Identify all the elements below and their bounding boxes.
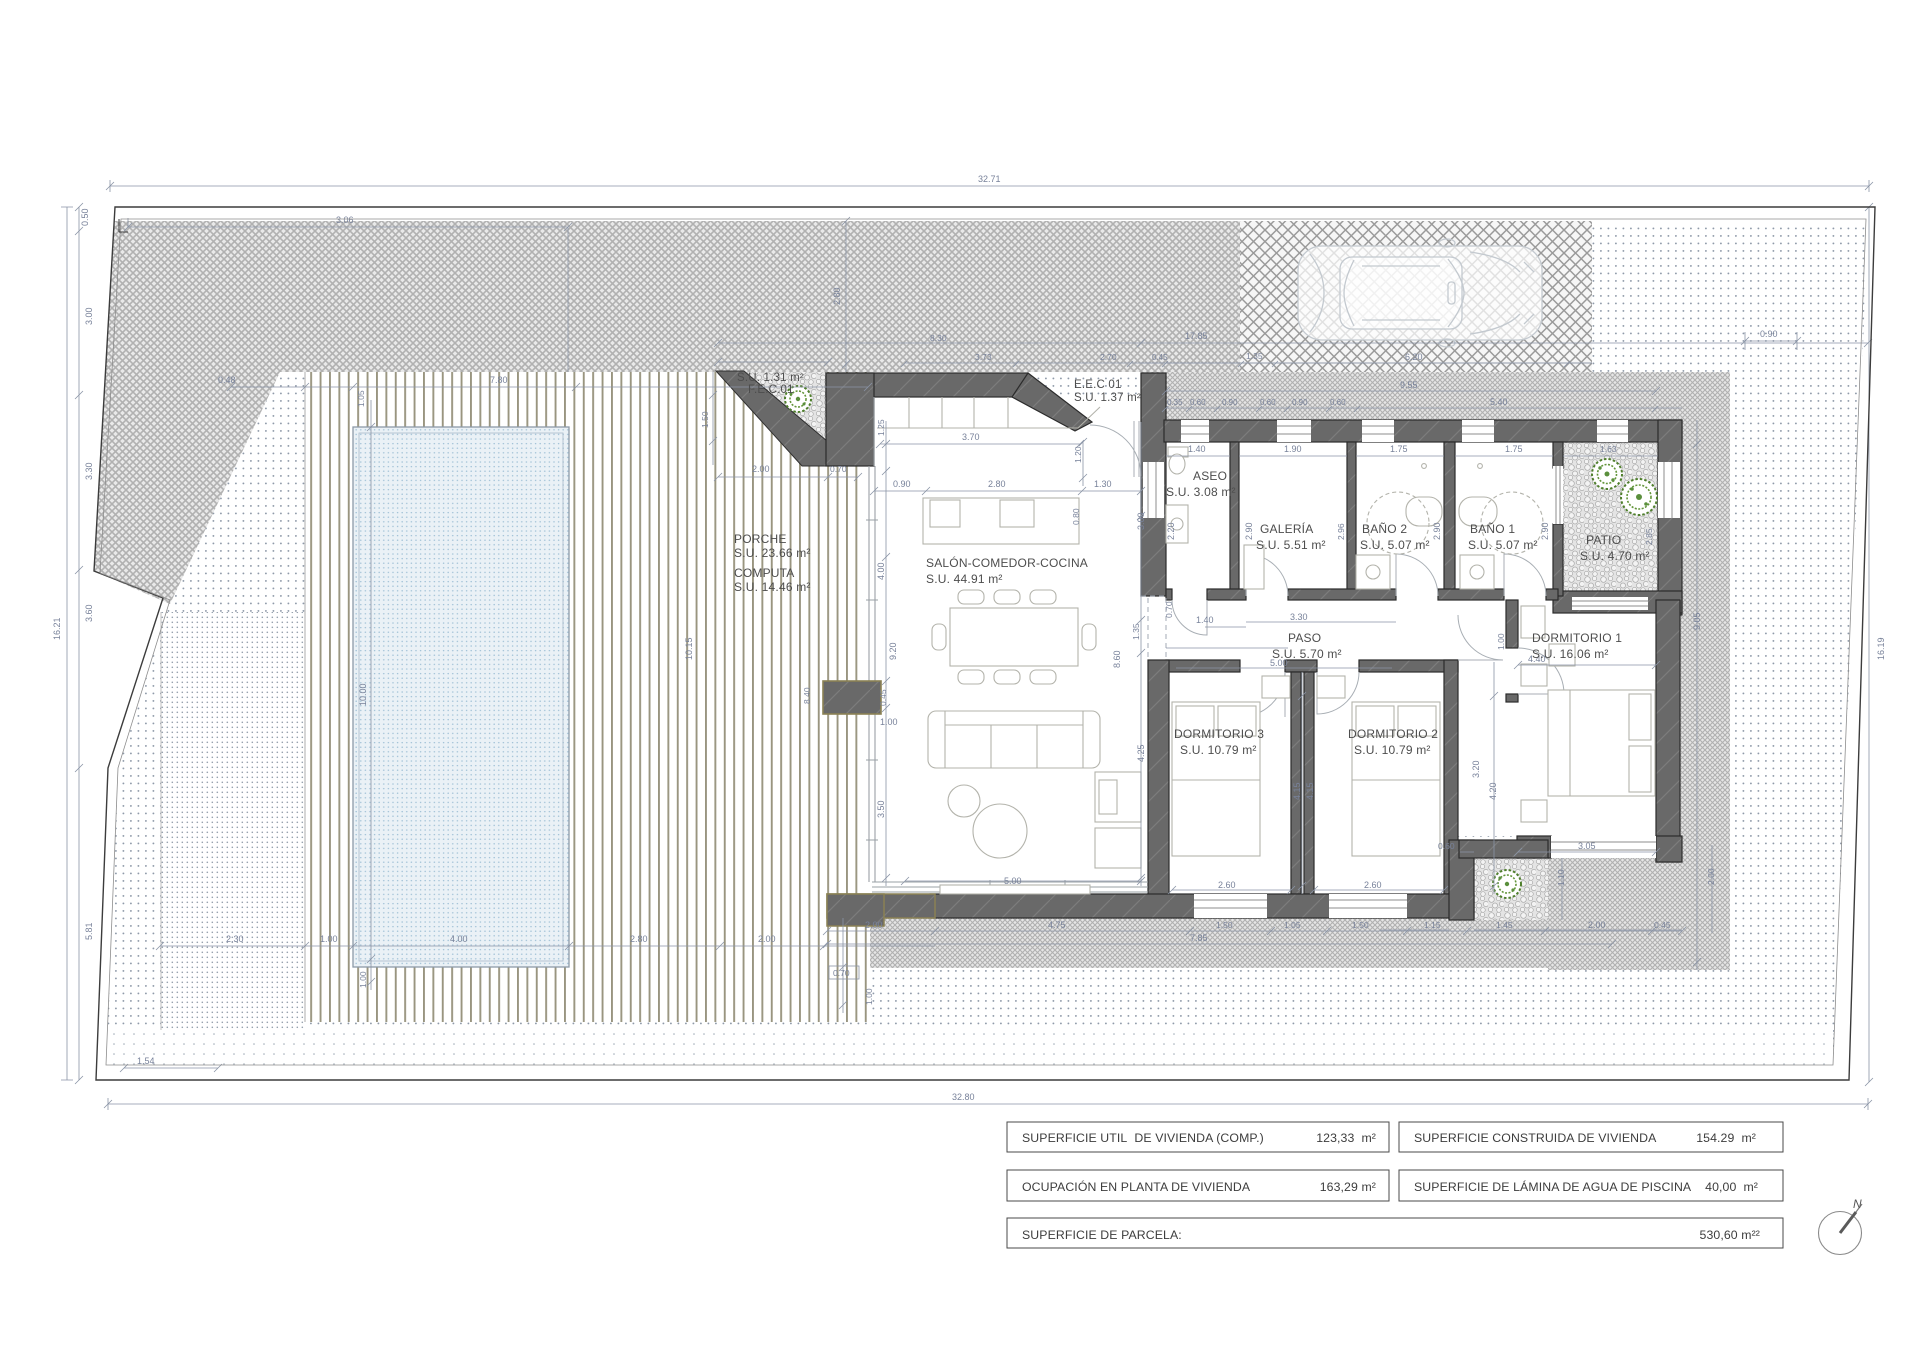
svg-text:2.00: 2.00 bbox=[1588, 920, 1606, 930]
svg-text:154.29 m²: 154.29 m² bbox=[1696, 1131, 1756, 1145]
svg-text:0.90: 0.90 bbox=[1292, 398, 1308, 407]
svg-text:2.90: 2.90 bbox=[1244, 522, 1254, 540]
svg-text:3.00: 3.00 bbox=[1136, 512, 1146, 530]
svg-text:3.70: 3.70 bbox=[962, 432, 980, 442]
svg-text:4.20: 4.20 bbox=[1488, 782, 1498, 800]
svg-text:1.50: 1.50 bbox=[700, 411, 710, 428]
svg-text:4.15: 4.15 bbox=[1292, 782, 1302, 800]
svg-text:S.U. 1.31 m²: S.U. 1.31 m² bbox=[737, 372, 804, 384]
svg-text:2.80: 2.80 bbox=[988, 479, 1006, 489]
svg-text:5.00: 5.00 bbox=[1004, 876, 1022, 886]
svg-text:2.85: 2.85 bbox=[1644, 528, 1654, 545]
svg-text:1.75: 1.75 bbox=[1390, 444, 1408, 454]
svg-text:SALÓN-COMEDOR-COCINA: SALÓN-COMEDOR-COCINA bbox=[926, 555, 1088, 570]
svg-text:3.60: 3.60 bbox=[84, 604, 94, 622]
svg-text:SUPERFICIE DE PARCELA:: SUPERFICIE DE PARCELA: bbox=[1022, 1228, 1182, 1242]
svg-text:1.00: 1.00 bbox=[1496, 633, 1506, 650]
svg-text:3.50: 3.50 bbox=[876, 800, 886, 818]
svg-text:163,29 m²: 163,29 m² bbox=[1320, 1180, 1376, 1194]
svg-text:0.90: 0.90 bbox=[1222, 398, 1238, 407]
svg-text:8.60: 8.60 bbox=[1112, 650, 1122, 668]
svg-text:2.80: 2.80 bbox=[630, 934, 648, 944]
svg-text:0.60: 0.60 bbox=[1190, 398, 1206, 407]
svg-text:2.60: 2.60 bbox=[1364, 880, 1382, 890]
svg-text:10.15: 10.15 bbox=[684, 637, 694, 660]
svg-text:1.05: 1.05 bbox=[356, 390, 366, 407]
svg-text:2.00: 2.00 bbox=[865, 920, 883, 930]
svg-text:PATIO: PATIO bbox=[1586, 533, 1621, 547]
svg-text:0.90: 0.90 bbox=[893, 479, 911, 489]
svg-text:1.75: 1.75 bbox=[1505, 444, 1523, 454]
svg-text:1.54: 1.54 bbox=[137, 1056, 155, 1066]
svg-text:1.20: 1.20 bbox=[1073, 446, 1083, 463]
svg-text:S.U. 5.07 m²: S.U. 5.07 m² bbox=[1468, 538, 1538, 552]
svg-text:2.30: 2.30 bbox=[226, 934, 244, 944]
svg-text:F.E.C.01: F.E.C.01 bbox=[748, 384, 794, 396]
svg-text:2.70: 2.70 bbox=[1100, 352, 1117, 362]
svg-text:2.20: 2.20 bbox=[1166, 522, 1176, 540]
svg-text:1.00: 1.00 bbox=[358, 971, 368, 988]
svg-text:2.00: 2.00 bbox=[1706, 868, 1716, 885]
svg-text:4.00: 4.00 bbox=[450, 934, 468, 944]
svg-text:10.00: 10.00 bbox=[358, 683, 368, 706]
svg-text:3.05: 3.05 bbox=[1578, 841, 1596, 851]
svg-text:0.60: 0.60 bbox=[1260, 398, 1276, 407]
svg-text:3.06: 3.06 bbox=[336, 215, 354, 225]
svg-text:0.50: 0.50 bbox=[80, 208, 90, 226]
svg-text:1.05: 1.05 bbox=[1284, 920, 1301, 930]
svg-text:5.81: 5.81 bbox=[84, 922, 94, 940]
svg-text:BAÑO 1: BAÑO 1 bbox=[1470, 522, 1515, 536]
svg-text:2.80: 2.80 bbox=[832, 287, 842, 305]
svg-text:0.45: 0.45 bbox=[1152, 353, 1168, 362]
svg-text:0.45: 0.45 bbox=[1654, 920, 1671, 930]
svg-text:6.20: 6.20 bbox=[1405, 352, 1423, 362]
svg-text:3.20: 3.20 bbox=[1471, 760, 1481, 778]
svg-text:3.00: 3.00 bbox=[84, 307, 94, 325]
svg-text:1.50: 1.50 bbox=[1216, 920, 1233, 930]
svg-text:DORMITORIO 1: DORMITORIO 1 bbox=[1532, 631, 1622, 645]
svg-text:3.73: 3.73 bbox=[975, 352, 992, 362]
svg-text:OCUPACIÓN EN PLANTA DE VIVIEND: OCUPACIÓN EN PLANTA DE VIVIENDA bbox=[1022, 1179, 1251, 1194]
svg-text:0.70: 0.70 bbox=[833, 968, 850, 978]
svg-text:1.63: 1.63 bbox=[1600, 444, 1617, 454]
svg-text:5.40: 5.40 bbox=[1490, 397, 1508, 407]
svg-text:COMPUTA: COMPUTA bbox=[734, 566, 795, 580]
svg-text:2.96: 2.96 bbox=[1336, 523, 1346, 540]
svg-text:0.70: 0.70 bbox=[1164, 601, 1174, 618]
svg-text:4.00: 4.00 bbox=[876, 562, 886, 580]
svg-text:0.35: 0.35 bbox=[1167, 398, 1183, 407]
svg-text:S.U. 5.51 m²: S.U. 5.51 m² bbox=[1256, 538, 1326, 552]
svg-text:1.50: 1.50 bbox=[1352, 920, 1369, 930]
svg-text:7.80: 7.80 bbox=[490, 375, 508, 385]
svg-text:1.90: 1.90 bbox=[1284, 444, 1302, 454]
svg-text:SUPERFICIE UTIL DE VIVIENDA (: SUPERFICIE UTIL DE VIVIENDA (COMP.) bbox=[1022, 1131, 1264, 1145]
svg-text:PASO: PASO bbox=[1288, 631, 1321, 645]
svg-text:17.85: 17.85 bbox=[1185, 331, 1208, 341]
svg-text:8.30: 8.30 bbox=[930, 333, 947, 343]
svg-text:2.60: 2.60 bbox=[1218, 880, 1236, 890]
svg-text:1.00: 1.00 bbox=[864, 988, 874, 1005]
svg-text:0.60: 0.60 bbox=[1438, 841, 1455, 851]
svg-text:DORMITORIO 3: DORMITORIO 3 bbox=[1174, 727, 1264, 741]
svg-text:SUPERFICIE CONSTRUIDA DE VIVIE: SUPERFICIE CONSTRUIDA DE VIVIENDA bbox=[1414, 1131, 1657, 1145]
svg-text:9.55: 9.55 bbox=[1400, 380, 1418, 390]
svg-text:0.60: 0.60 bbox=[1330, 398, 1346, 407]
svg-text:S.U. 4.70 m²: S.U. 4.70 m² bbox=[1580, 549, 1650, 563]
svg-text:3.30: 3.30 bbox=[84, 462, 94, 480]
svg-text:S.U. 5.07 m²: S.U. 5.07 m² bbox=[1360, 538, 1430, 552]
svg-text:0.70: 0.70 bbox=[830, 464, 847, 474]
svg-text:2.00: 2.00 bbox=[752, 464, 770, 474]
svg-text:8.40: 8.40 bbox=[802, 687, 812, 704]
svg-text:0.48: 0.48 bbox=[218, 375, 236, 385]
svg-text:DORMITORIO 2: DORMITORIO 2 bbox=[1348, 727, 1438, 741]
svg-text:4.75: 4.75 bbox=[1048, 920, 1066, 930]
svg-text:E.E.C 01: E.E.C 01 bbox=[1074, 379, 1122, 391]
svg-text:16.21: 16.21 bbox=[52, 617, 62, 640]
svg-text:1.25: 1.25 bbox=[876, 419, 886, 436]
svg-text:S.U. 14.46 m²: S.U. 14.46 m² bbox=[734, 580, 811, 594]
svg-text:1.30: 1.30 bbox=[1094, 479, 1112, 489]
svg-text:1.10: 1.10 bbox=[1556, 869, 1566, 886]
svg-text:N: N bbox=[1853, 1197, 1862, 1211]
svg-text:S.U. 1.37 m²: S.U. 1.37 m² bbox=[1074, 392, 1141, 404]
svg-text:S.U. 10.79 m²: S.U. 10.79 m² bbox=[1354, 743, 1431, 757]
svg-text:S.U. 23.66 m²: S.U. 23.66 m² bbox=[734, 546, 811, 560]
svg-text:2.90: 2.90 bbox=[1540, 522, 1550, 540]
svg-text:9.05: 9.05 bbox=[1692, 612, 1702, 630]
svg-text:1.40: 1.40 bbox=[1188, 444, 1206, 454]
svg-text:S.U. 44.91 m²: S.U. 44.91 m² bbox=[926, 572, 1003, 586]
svg-text:1.00: 1.00 bbox=[320, 934, 338, 944]
svg-text:0.90: 0.90 bbox=[1760, 329, 1778, 339]
svg-text:S.U. 3.08 m²: S.U. 3.08 m² bbox=[1166, 485, 1236, 499]
svg-text:7.85: 7.85 bbox=[1190, 933, 1208, 943]
svg-text:ASEO: ASEO bbox=[1193, 469, 1227, 483]
svg-text:2.90: 2.90 bbox=[1432, 522, 1442, 540]
svg-text:S.U. 10.79 m²: S.U. 10.79 m² bbox=[1180, 743, 1257, 757]
svg-text:1.00: 1.00 bbox=[880, 717, 898, 727]
svg-text:GALERÍA: GALERÍA bbox=[1260, 521, 1313, 536]
svg-text:123,33 m²: 123,33 m² bbox=[1316, 1131, 1376, 1145]
svg-text:0.80: 0.80 bbox=[1071, 508, 1081, 525]
svg-text:3.30: 3.30 bbox=[1290, 612, 1308, 622]
svg-text:4.25: 4.25 bbox=[1136, 744, 1146, 762]
svg-text:32.71: 32.71 bbox=[978, 174, 1001, 184]
svg-text:BAÑO 2: BAÑO 2 bbox=[1362, 522, 1407, 536]
svg-text:SUPERFICIE DE LÁMINA DE AGUA D: SUPERFICIE DE LÁMINA DE AGUA DE PISCINA bbox=[1414, 1179, 1692, 1194]
svg-text:1.35: 1.35 bbox=[1131, 623, 1141, 640]
svg-text:530,60 m²²: 530,60 m²² bbox=[1700, 1228, 1760, 1242]
svg-text:2.00: 2.00 bbox=[758, 934, 776, 944]
svg-text:1.35: 1.35 bbox=[1246, 351, 1263, 361]
svg-text:40,00 m²: 40,00 m² bbox=[1705, 1180, 1758, 1194]
svg-text:1.45: 1.45 bbox=[1496, 920, 1513, 930]
svg-text:1.15: 1.15 bbox=[1424, 920, 1441, 930]
svg-text:9.20: 9.20 bbox=[888, 642, 898, 660]
svg-text:S.U. 16.06 m²: S.U. 16.06 m² bbox=[1532, 647, 1609, 661]
svg-text:PORCHE: PORCHE bbox=[734, 532, 787, 546]
svg-text:32.80: 32.80 bbox=[952, 1092, 975, 1102]
svg-text:S.U. 5.70 m²: S.U. 5.70 m² bbox=[1272, 647, 1342, 661]
svg-text:1.40: 1.40 bbox=[1196, 615, 1214, 625]
svg-text:16.19: 16.19 bbox=[1876, 637, 1886, 660]
svg-text:4.15: 4.15 bbox=[1305, 782, 1315, 800]
svg-text:0.45: 0.45 bbox=[878, 689, 888, 706]
